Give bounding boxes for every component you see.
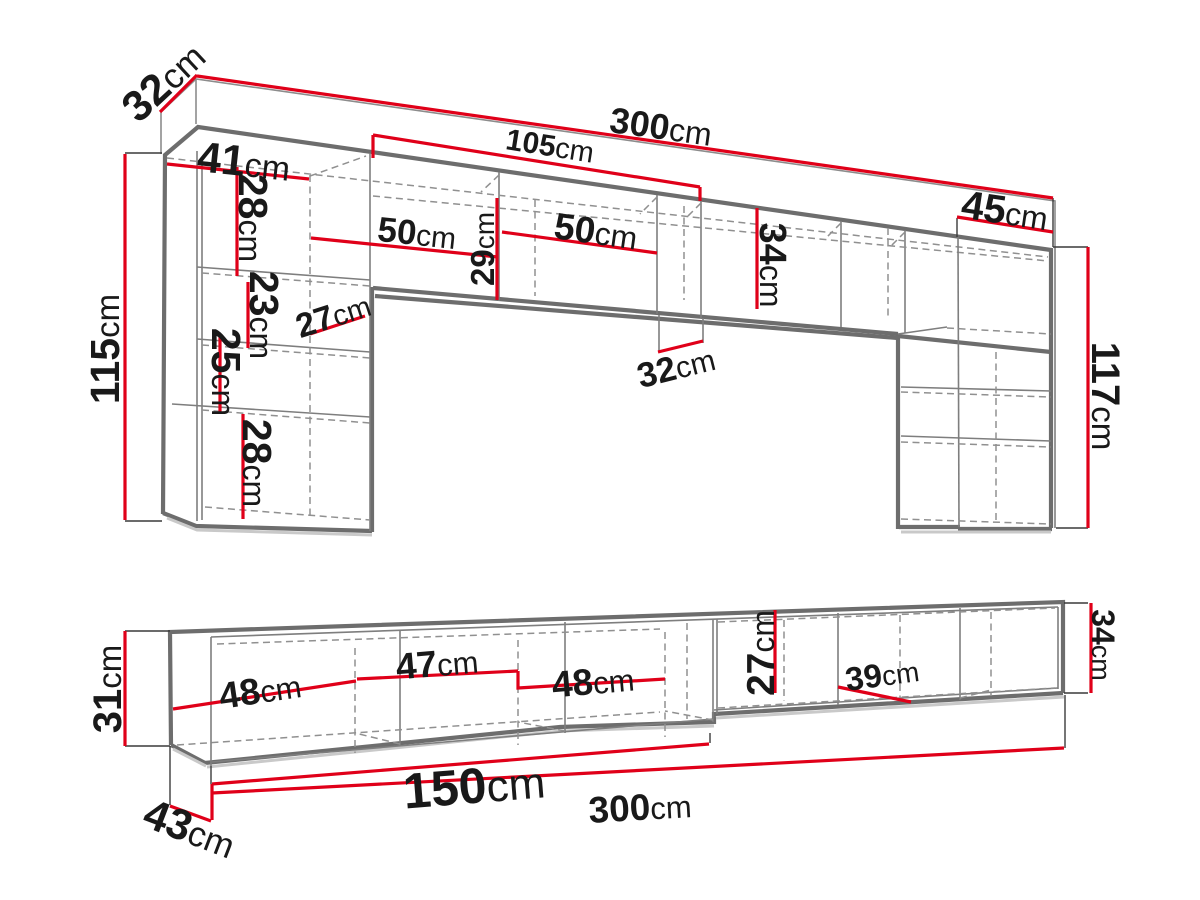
svg-text:34cm: 34cm	[751, 223, 793, 308]
svg-text:29cm: 29cm	[464, 212, 501, 286]
svg-text:27cm: 27cm	[740, 610, 783, 696]
svg-text:31cm: 31cm	[86, 645, 130, 734]
svg-text:300cm: 300cm	[587, 784, 692, 831]
svg-text:115cm: 115cm	[82, 294, 128, 404]
svg-text:117cm: 117cm	[1083, 342, 1127, 451]
svg-text:34cm: 34cm	[1085, 609, 1121, 681]
